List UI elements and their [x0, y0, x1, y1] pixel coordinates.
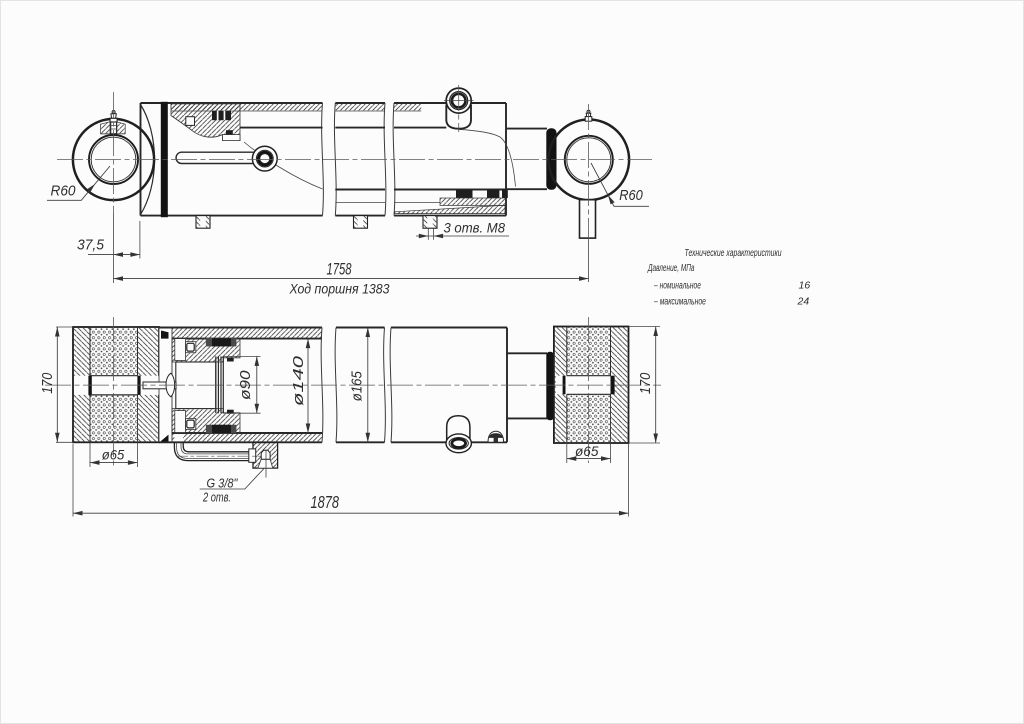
svg-text:170: 170	[39, 372, 56, 394]
svg-text:ø140: ø140	[290, 355, 307, 406]
svg-text:1878: 1878	[311, 492, 340, 512]
svg-text:G 3/8": G 3/8"	[207, 476, 239, 491]
svg-text:– максимальное: – максимальное	[653, 297, 706, 308]
svg-text:R60: R60	[619, 187, 643, 204]
svg-text:Ход поршня 1383: Ход поршня 1383	[289, 280, 390, 296]
svg-text:Технические характеристики: Технические характеристики	[685, 248, 782, 259]
svg-text:170: 170	[637, 372, 654, 394]
svg-text:2 отв.: 2 отв.	[202, 489, 231, 504]
svg-text:Давление, МПа: Давление, МПа	[647, 263, 694, 274]
svg-text:ø65: ø65	[102, 447, 125, 463]
svg-text:37,5: 37,5	[77, 236, 105, 253]
svg-text:– номинальное: – номинальное	[653, 281, 701, 292]
svg-text:24: 24	[797, 296, 810, 308]
svg-text:ø65: ø65	[575, 443, 599, 459]
svg-text:16: 16	[799, 280, 811, 292]
svg-text:1758: 1758	[327, 260, 352, 279]
svg-text:3 отв. М8: 3 отв. М8	[444, 220, 506, 236]
svg-text:ø90: ø90	[237, 370, 254, 400]
svg-text:ø165: ø165	[348, 371, 365, 402]
svg-text:R60: R60	[51, 182, 77, 199]
